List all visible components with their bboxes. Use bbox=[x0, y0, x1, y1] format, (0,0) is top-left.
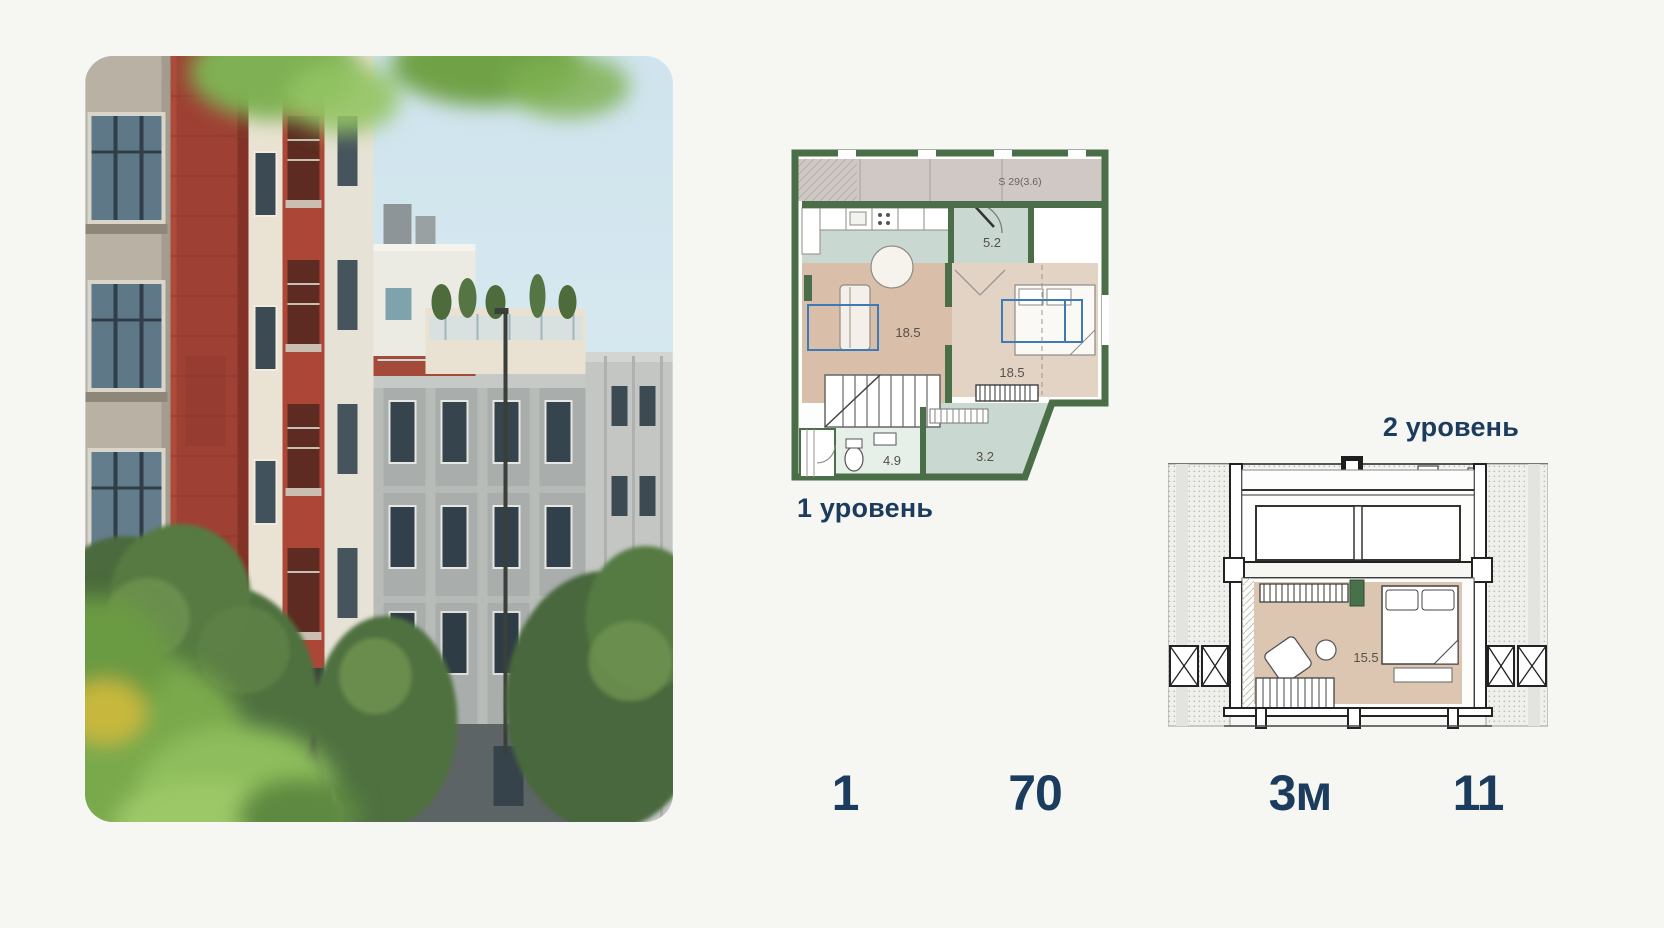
stat-floor: 11 bbox=[1453, 768, 1504, 818]
shaft-wall-right bbox=[1474, 464, 1486, 716]
floorplan-level-1[interactable]: S 29(3.6) bbox=[780, 145, 1110, 490]
bathroom-area-label: 4.9 bbox=[883, 453, 901, 468]
sink bbox=[874, 433, 896, 445]
sofa bbox=[840, 285, 870, 350]
entry-area-label: 5.2 bbox=[983, 235, 1001, 250]
bench bbox=[1394, 668, 1452, 682]
floorplan-level-2-drawing: 15.5 bbox=[1168, 450, 1548, 735]
bed-level2 bbox=[1382, 586, 1458, 664]
stat-area: 70 bbox=[1008, 768, 1062, 818]
hall-area-label: 3.2 bbox=[976, 449, 994, 464]
side-table bbox=[1316, 640, 1336, 660]
floorplan-level-1-drawing: S 29(3.6) bbox=[780, 145, 1110, 490]
upper-void bbox=[1242, 470, 1474, 562]
stat-rooms: 1 bbox=[832, 768, 859, 818]
terrace: S 29(3.6) bbox=[795, 159, 1105, 201]
level1-label: 1 уровень bbox=[797, 494, 933, 524]
bedroom-area-label: 18.5 bbox=[999, 365, 1024, 380]
dining-table bbox=[871, 246, 913, 288]
closet-floor bbox=[1032, 208, 1098, 263]
shaft-wall-left bbox=[1230, 464, 1242, 716]
floorplan-level-2[interactable]: 15.5 bbox=[1168, 450, 1548, 735]
building-photo-scene bbox=[85, 56, 673, 822]
terrace-area-label: S 29(3.6) bbox=[998, 176, 1041, 188]
attic-bedroom-area-label: 15.5 bbox=[1353, 650, 1378, 665]
stairs-level2 bbox=[1256, 678, 1334, 708]
bottom-beams bbox=[1224, 708, 1492, 728]
living-area-label: 18.5 bbox=[895, 325, 920, 340]
entrance-porch bbox=[800, 429, 835, 477]
stat-section: 3м bbox=[1269, 768, 1332, 818]
toilet bbox=[845, 447, 863, 471]
level2-label: 2 уровень bbox=[1299, 413, 1519, 443]
building-photo[interactable] bbox=[85, 56, 673, 822]
attic-bedroom: 15.5 bbox=[1242, 578, 1474, 708]
green-wall-stub bbox=[1350, 580, 1364, 606]
